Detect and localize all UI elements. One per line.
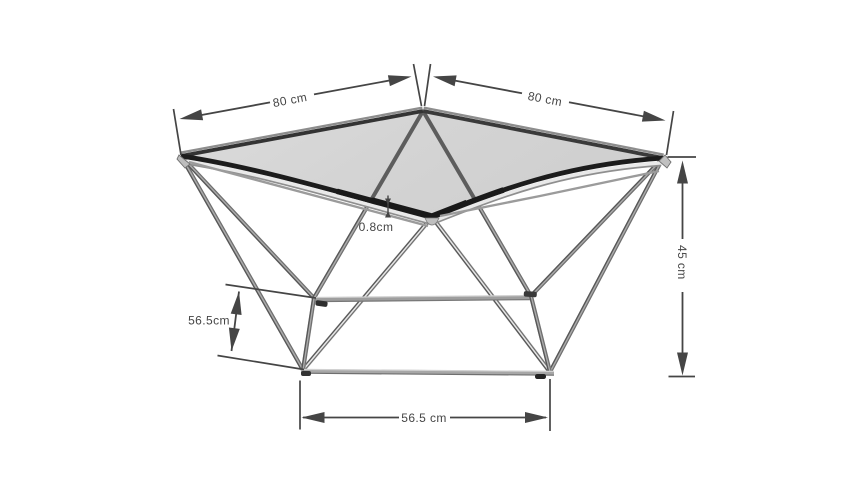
svg-text:56.5cm: 56.5cm (188, 314, 230, 328)
svg-text:45 cm: 45 cm (675, 245, 689, 280)
svg-text:56.5 cm: 56.5 cm (401, 411, 447, 425)
svg-text:0.8cm: 0.8cm (359, 220, 394, 234)
